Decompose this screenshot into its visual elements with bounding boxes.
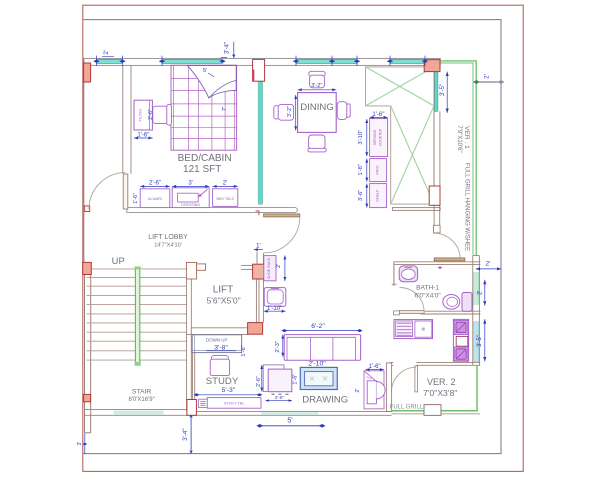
svg-text:3'-5": 3'-5": [477, 335, 483, 347]
svg-text:SHELF: SHELF: [375, 189, 379, 202]
svg-text:2'-6": 2'-6": [148, 109, 154, 120]
svg-text:1'-8": 1'-8": [358, 164, 364, 176]
svg-text:UP: UP: [112, 255, 125, 266]
svg-text:5': 5': [287, 417, 292, 424]
svg-text:2'-6": 2'-6": [275, 395, 285, 400]
svg-text:1'-6": 1'-6": [372, 112, 384, 118]
svg-text:FILING: FILING: [138, 109, 143, 122]
svg-text:BED TBLS: BED TBLS: [217, 197, 235, 201]
svg-text:STAIR: STAIR: [132, 388, 152, 395]
svg-text:121 SFT: 121 SFT: [183, 164, 221, 175]
svg-text:2'-6": 2'-6": [256, 376, 262, 387]
svg-text:2'-3": 2'-3": [275, 341, 281, 353]
svg-text:8'0'X16'9": 8'0'X16'9": [128, 397, 154, 403]
svg-text:2': 2': [223, 180, 227, 186]
svg-text:DRESSING: DRESSING: [181, 203, 200, 207]
svg-text:5'-3": 5'-3": [222, 387, 236, 394]
svg-text:3'-5": 3'-5": [439, 84, 446, 96]
svg-text:3'-6": 3'-6": [358, 190, 364, 202]
svg-text:FULL GRILL HANGING W/SHEE: FULL GRILL HANGING W/SHEE: [464, 163, 470, 251]
svg-text:2': 2': [483, 74, 490, 79]
svg-text:3'-2": 3'-2": [311, 83, 322, 89]
svg-text:7'0"X3'8": 7'0"X3'8": [423, 388, 457, 398]
svg-text:VER. 2: VER. 2: [427, 377, 456, 387]
svg-text:LIFT LOBBY: LIFT LOBBY: [148, 234, 188, 241]
svg-text:BATH-1: BATH-1: [416, 284, 439, 291]
svg-text:1'-6": 1'-6": [369, 364, 381, 370]
svg-text:5'6"X5'0": 5'6"X5'0": [206, 295, 240, 305]
svg-text:7'9"X10'6": 7'9"X10'6": [456, 125, 462, 152]
svg-text:2': 2': [276, 264, 282, 268]
svg-text:7': 7': [222, 107, 228, 111]
svg-text:2'-6": 2'-6": [149, 180, 161, 186]
svg-text:SERVING: SERVING: [373, 129, 377, 145]
svg-text:COUNTER: COUNTER: [378, 128, 382, 146]
svg-text:14'7"X4'10': 14'7"X4'10': [154, 242, 182, 248]
svg-text:1'-6": 1'-6": [133, 193, 139, 204]
svg-text:1'-6": 1'-6": [241, 345, 247, 357]
svg-text:2': 2': [355, 389, 361, 393]
svg-text:6'-2": 6'-2": [311, 323, 325, 330]
svg-text:FULL GRILL: FULL GRILL: [390, 404, 424, 410]
svg-text:3'-4": 3'-4": [182, 428, 189, 440]
svg-text:SHOE RACK: SHOE RACK: [267, 257, 271, 279]
svg-text:BED/CABIN: BED/CABIN: [178, 153, 232, 164]
svg-text:1'-6": 1'-6": [292, 374, 298, 385]
svg-text:VER . 1: VER . 1: [463, 126, 470, 149]
svg-text:3': 3': [188, 180, 192, 186]
svg-text:STUDY TBL: STUDY TBL: [224, 402, 245, 406]
svg-text:2': 2': [477, 291, 483, 295]
svg-text:3': 3': [77, 442, 83, 446]
svg-text:2'-10": 2'-10": [308, 361, 326, 368]
svg-text:2': 2': [486, 260, 491, 267]
svg-text:FRIG: FRIG: [375, 165, 379, 174]
svg-text:ALMARI: ALMARI: [148, 197, 162, 201]
svg-text:STUDY: STUDY: [206, 376, 239, 387]
svg-text:3'-8": 3'-8": [214, 344, 228, 351]
svg-text:3'-4": 3'-4": [224, 42, 231, 54]
svg-text:6'0"X4'0": 6'0"X4'0": [414, 292, 441, 299]
svg-text:3'-2": 3'-2": [287, 106, 293, 117]
svg-text:1'-6": 1'-6": [137, 132, 149, 138]
svg-text:3'-10": 3'-10": [358, 130, 364, 145]
svg-text:2': 2': [103, 50, 110, 55]
svg-text:5': 5': [203, 68, 207, 74]
svg-text:DINING: DINING: [300, 102, 334, 113]
svg-text:DRAWING: DRAWING: [302, 395, 348, 406]
svg-text:LIFT: LIFT: [213, 284, 234, 295]
svg-text:DOWN UP: DOWN UP: [206, 337, 227, 342]
